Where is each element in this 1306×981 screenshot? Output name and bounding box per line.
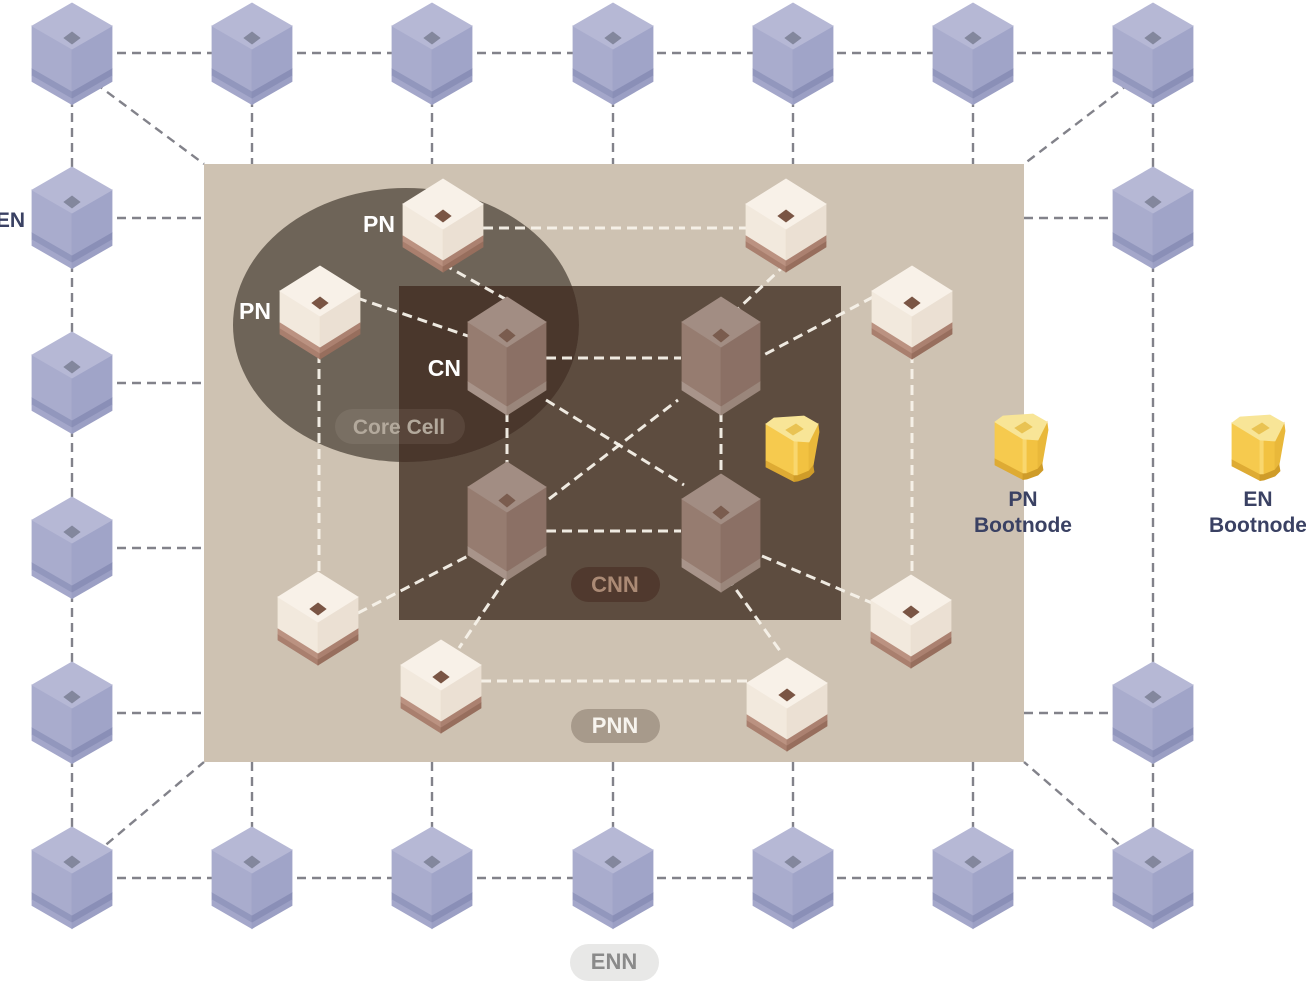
svg-text:CN: CN bbox=[428, 355, 461, 381]
svg-text:Bootnode: Bootnode bbox=[974, 514, 1072, 537]
svg-text:EN: EN bbox=[0, 209, 25, 232]
svg-text:Core Cell: Core Cell bbox=[353, 416, 445, 439]
svg-text:PN: PN bbox=[239, 298, 271, 324]
svg-text:ENN: ENN bbox=[591, 949, 637, 974]
svg-text:EN: EN bbox=[1243, 488, 1272, 511]
svg-text:Bootnode: Bootnode bbox=[1209, 514, 1306, 537]
svg-text:PN: PN bbox=[363, 211, 395, 237]
svg-text:CNN: CNN bbox=[591, 572, 639, 597]
svg-text:PN: PN bbox=[1008, 488, 1037, 511]
svg-text:PNN: PNN bbox=[592, 713, 638, 738]
